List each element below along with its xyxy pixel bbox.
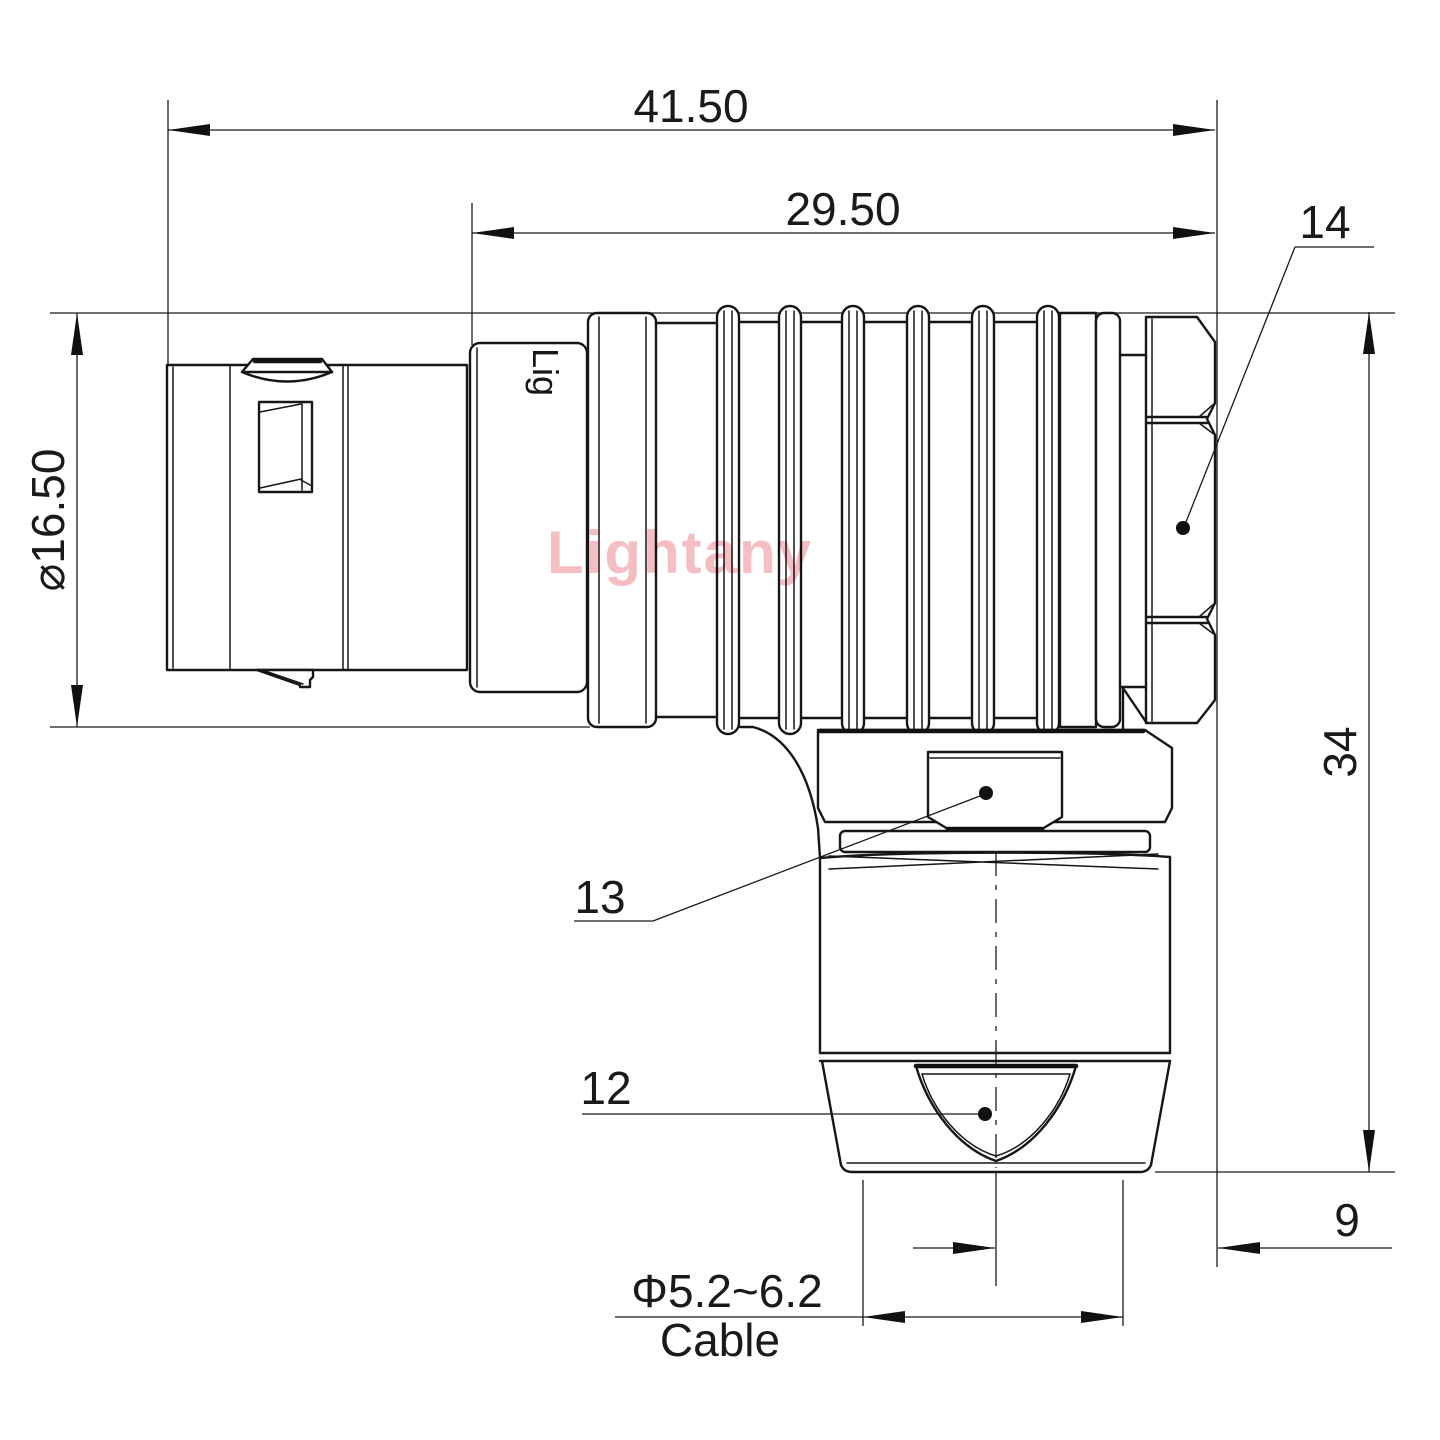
arrow-right-icon [1173,227,1215,239]
arrow-up-icon [71,313,83,355]
cable-clamp-cone [822,852,1170,1172]
dim-cable-range: Φ5.2~6.2 [631,1265,822,1317]
leader-dot-13 [979,786,993,800]
leader-dot-14 [1176,521,1190,535]
arrow-down-icon [1363,1130,1375,1172]
arrow-right-icon [953,1242,995,1254]
back-nut-underside [1123,688,1146,730]
front-shell-outline [167,365,467,670]
rib [972,306,994,734]
arrow-left-icon [1218,1242,1260,1254]
part-label-12: 12 [580,1062,631,1114]
cone-bottom-edge [841,1165,1151,1172]
arrow-down-icon [71,685,83,727]
cable-label: Cable [660,1314,780,1366]
clamp-body-sides [820,857,1170,1053]
arrow-left-icon [168,124,210,136]
part-label-13: 13 [574,871,625,923]
back-nut [1123,317,1215,730]
dim-axis-offset: 9 [1334,1194,1360,1246]
hex-flat-face [928,752,1062,829]
rear-band [1060,313,1146,727]
drawing-canvas: Lig [0,0,1440,1440]
dim-front-diameter: ⌀16.50 [22,449,74,592]
clamp-body-bottom-lines [820,1053,1170,1061]
keyway-slot [259,402,312,492]
arrow-right-icon [1173,124,1215,136]
connector-body: Lig [167,306,1215,1172]
rib [1037,306,1059,734]
arrow-left-icon [863,1311,905,1323]
rib [842,306,864,734]
retaining-ring [1096,313,1120,727]
part-label-14: 14 [1299,196,1350,248]
back-nut-outline [1146,317,1215,723]
coupling-sleeve: Lig [470,343,587,692]
leader-dot-12 [978,1107,992,1121]
rib [907,306,929,734]
dim-rear-length: 29.50 [785,183,900,235]
elbow-curve [740,727,820,858]
arrow-right-icon [1081,1311,1123,1323]
thread-lines [829,854,1158,869]
front-shell [167,359,467,687]
dim-height: 34 [1314,726,1366,777]
end-band [1060,313,1096,727]
dim-overall-length: 41.50 [633,80,748,132]
watermark-text: Lightany [547,519,813,586]
clamp-hex [818,730,1172,829]
body-marking-text: Lig [525,348,566,396]
connector-drawing-svg: Lig [0,0,1440,1440]
arrow-up-icon [1363,312,1375,354]
clamp-washer [840,831,1150,852]
arrow-left-icon [472,227,514,239]
clamp-body [820,853,1170,1061]
